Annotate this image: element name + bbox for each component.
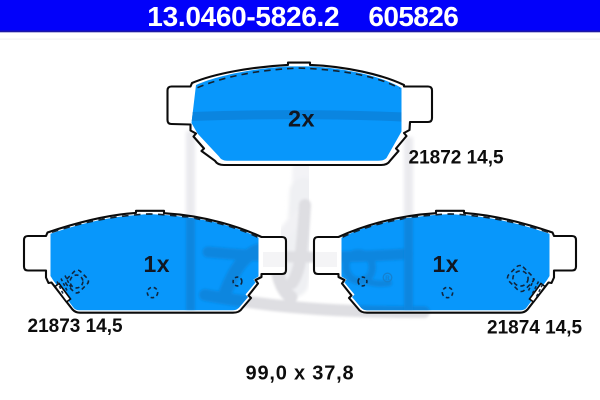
svg-text:13.0460-5826.2: 13.0460-5826.2 [147, 1, 339, 32]
svg-text:605826: 605826 [368, 1, 458, 32]
svg-text:R: R [385, 275, 390, 282]
svg-text:1x: 1x [144, 251, 170, 277]
svg-text:21873 14,5: 21873 14,5 [28, 316, 124, 337]
svg-text:1x: 1x [433, 251, 459, 277]
svg-text:2x: 2x [288, 105, 315, 131]
svg-text:99,0 x 37,8: 99,0 x 37,8 [246, 363, 355, 385]
svg-text:21874 14,5: 21874 14,5 [487, 317, 583, 338]
svg-text:21872 14,5: 21872 14,5 [409, 147, 505, 168]
